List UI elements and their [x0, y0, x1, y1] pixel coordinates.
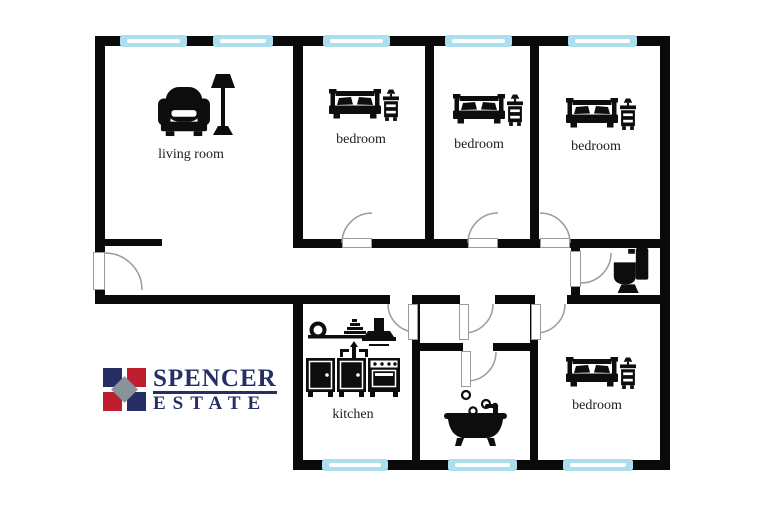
steamer-icon	[344, 319, 366, 334]
wall	[293, 36, 303, 248]
range-hood-icon	[362, 318, 396, 346]
door-leaf	[93, 252, 105, 290]
double-bed-icon	[566, 98, 618, 130]
wall	[493, 343, 530, 351]
door-arc	[467, 352, 496, 381]
wall	[530, 36, 539, 248]
wall	[293, 295, 303, 470]
room-label-bedroom-4: bedroom	[572, 398, 622, 414]
door-swing-arcs	[0, 0, 770, 510]
toilet-icon	[613, 248, 651, 294]
room-label-bedroom-2: bedroom	[454, 137, 504, 153]
double-bed-icon	[566, 357, 618, 389]
bubbles-icon	[462, 391, 490, 415]
door-leaf	[408, 304, 418, 340]
wall	[660, 36, 670, 470]
window	[563, 459, 633, 471]
door-leaf	[570, 251, 581, 287]
wall	[425, 36, 434, 248]
room-label-bedroom-3: bedroom	[571, 139, 621, 155]
nightstand-lamp-icon	[383, 89, 399, 122]
door-leaf	[459, 304, 469, 340]
floor-plan: living room bedroom bedroom bedroom bedr…	[0, 0, 770, 510]
room-label-living-room: living room	[158, 147, 224, 163]
window	[448, 459, 517, 471]
window	[213, 35, 273, 47]
window	[568, 35, 637, 47]
wall	[412, 295, 460, 304]
door-leaf	[342, 238, 372, 248]
door-leaf	[461, 351, 471, 387]
wall	[571, 285, 580, 304]
logo-name-line2: ESTATE	[153, 394, 267, 413]
wall	[570, 239, 660, 248]
door-arc	[105, 253, 142, 290]
wall	[495, 295, 535, 304]
pot-roll-icon	[312, 324, 325, 337]
cabinets-stove-icon	[306, 358, 400, 397]
window	[120, 35, 187, 47]
door-leaf	[540, 238, 570, 248]
wall	[420, 343, 463, 351]
armchair-icon	[158, 87, 210, 137]
door-arc	[581, 253, 611, 283]
sink-faucet-icon	[340, 341, 368, 358]
wall	[567, 295, 670, 304]
wall	[95, 36, 105, 252]
bathtub-icon	[443, 387, 509, 451]
wall	[372, 239, 468, 248]
floor-lamp-icon	[209, 73, 237, 137]
window	[322, 459, 388, 471]
nightstand-lamp-icon	[507, 94, 523, 127]
kitchen-appliances-icon	[306, 316, 402, 398]
window	[445, 35, 512, 47]
window	[323, 35, 390, 47]
wall	[95, 239, 162, 246]
double-bed-icon	[453, 94, 505, 126]
door-leaf	[468, 238, 498, 248]
double-bed-icon	[329, 89, 381, 121]
logo-name-line1: SPENCER	[153, 366, 277, 394]
nightstand-lamp-icon	[620, 357, 636, 390]
room-label-kitchen: kitchen	[332, 407, 373, 423]
nightstand-lamp-icon	[620, 98, 636, 131]
wall	[95, 295, 390, 304]
room-label-bedroom-1: bedroom	[336, 132, 386, 148]
door-leaf	[531, 304, 541, 340]
